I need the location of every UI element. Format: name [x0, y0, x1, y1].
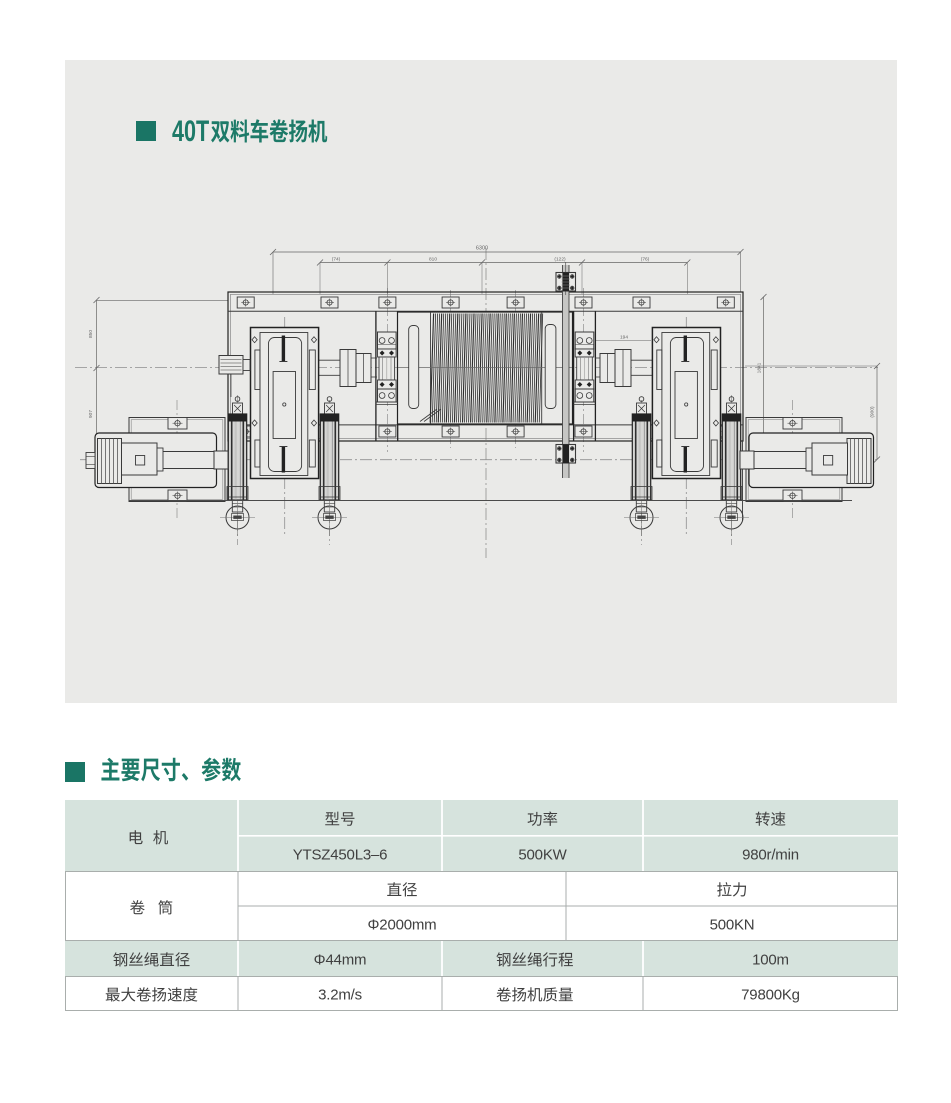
svg-text:194: 194 [620, 335, 628, 341]
svg-text:Φ44mm: Φ44mm [314, 952, 367, 969]
svg-text:6300: 6300 [476, 246, 488, 252]
svg-text:40T: 40T [172, 113, 209, 147]
svg-text:500KW: 500KW [518, 847, 567, 864]
svg-text:Φ2000mm: Φ2000mm [368, 917, 437, 934]
svg-text:(76): (76) [641, 256, 650, 262]
svg-text:(122): (122) [554, 256, 566, 262]
svg-text:810: 810 [429, 256, 437, 262]
svg-text:1841: 1841 [757, 362, 763, 373]
svg-text:3.2m/s: 3.2m/s [318, 987, 362, 1004]
svg-text:500KN: 500KN [710, 917, 755, 934]
svg-text:980r/min: 980r/min [742, 847, 799, 864]
svg-text:79800Kg: 79800Kg [741, 987, 800, 1004]
svg-text:YTSZ450L3–6: YTSZ450L3–6 [293, 847, 388, 864]
svg-text:(74): (74) [332, 256, 341, 262]
svg-text:(900): (900) [870, 406, 876, 418]
svg-text:850: 850 [88, 330, 94, 338]
svg-text:907: 907 [88, 410, 94, 418]
svg-text:100m: 100m [752, 952, 789, 969]
